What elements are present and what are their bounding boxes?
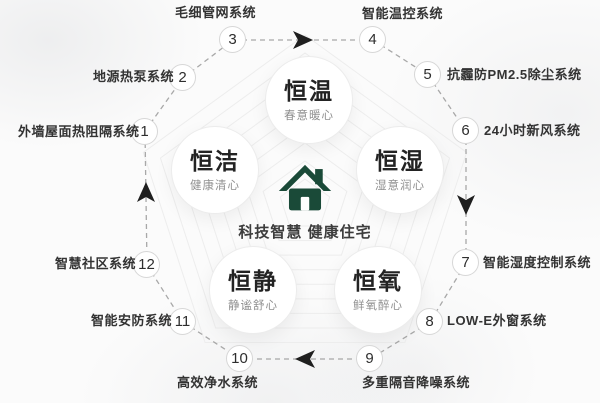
concept-circle-hengshi: 恒湿 湿意润心: [356, 126, 444, 214]
concept-circle-hengjing: 恒静 静谧舒心: [209, 246, 297, 334]
system-node-4: 4: [359, 26, 386, 53]
system-label-7: 智能湿度控制系统: [483, 256, 591, 270]
system-label-10: 高效净水系统: [177, 376, 258, 390]
concept-subtitle: 鲜氧醉心: [353, 297, 403, 313]
node-number: 12: [138, 256, 155, 273]
system-node-3: 3: [219, 26, 246, 53]
system-node-6: 6: [452, 117, 479, 144]
concept-subtitle: 湿意润心: [375, 177, 425, 193]
concept-circle-hengyang: 恒氧 鲜氧醉心: [334, 246, 422, 334]
system-node-11: 11: [169, 308, 196, 335]
concept-subtitle: 春意暖心: [284, 107, 334, 123]
node-number: 10: [231, 350, 248, 367]
system-label-3: 毛细管网系统: [175, 6, 256, 20]
infographic-canvas: 1 2 3 4 5 6 7 8 9 10 11 12 外墙屋面热阻隔系统 地源热…: [0, 0, 600, 403]
concept-title: 恒静: [228, 268, 278, 294]
system-label-5: 抗霾防PM2.5除尘系统: [447, 68, 582, 82]
system-label-9: 多重隔音降噪系统: [362, 376, 470, 390]
concept-subtitle: 静谧舒心: [228, 297, 278, 313]
system-node-10: 10: [226, 345, 253, 372]
concept-subtitle: 健康清心: [190, 177, 240, 193]
system-label-2: 地源热泵系统: [93, 70, 174, 84]
concept-circle-hengjie: 恒洁 健康清心: [171, 126, 259, 214]
node-number: 1: [140, 123, 148, 140]
concept-title: 恒洁: [190, 148, 240, 174]
system-node-9: 9: [356, 345, 383, 372]
system-label-1: 外墙屋面热阻隔系统: [18, 125, 140, 139]
node-number: 7: [461, 254, 469, 271]
node-number: 3: [228, 31, 236, 48]
concept-title: 恒温: [284, 78, 334, 104]
system-label-4: 智能温控系统: [362, 7, 443, 21]
concept-title: 恒湿: [375, 148, 425, 174]
center-tagline: 科技智慧 健康住宅: [205, 221, 405, 242]
node-number: 5: [423, 66, 431, 83]
house-icon: [278, 163, 332, 219]
system-label-11: 智能安防系统: [91, 314, 172, 328]
system-label-8: LOW-E外窗系统: [447, 314, 547, 328]
node-number: 9: [365, 350, 373, 367]
system-node-7: 7: [452, 249, 479, 276]
node-number: 8: [425, 313, 433, 330]
system-label-12: 智慧社区系统: [55, 257, 136, 271]
system-label-6: 24小时新风系统: [484, 124, 580, 138]
node-number: 6: [461, 122, 469, 139]
concept-circle-hengwen: 恒温 春意暖心: [265, 56, 353, 144]
node-number: 11: [175, 313, 191, 330]
node-number: 2: [178, 69, 186, 86]
system-node-12: 12: [133, 251, 160, 278]
node-number: 4: [368, 31, 376, 48]
system-node-8: 8: [416, 308, 443, 335]
system-node-5: 5: [414, 61, 441, 88]
concept-title: 恒氧: [353, 268, 403, 294]
